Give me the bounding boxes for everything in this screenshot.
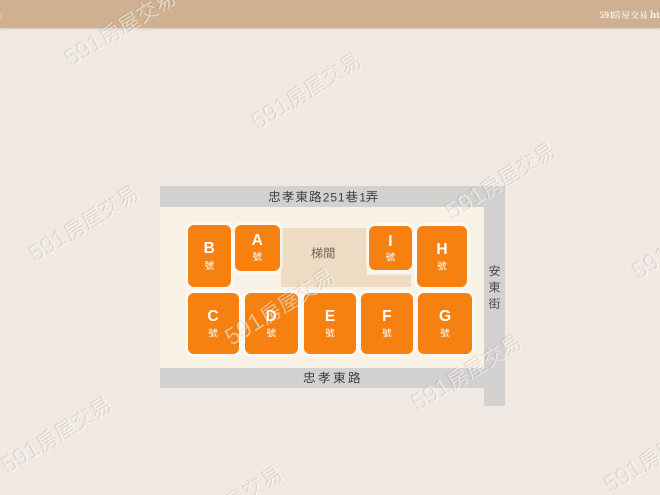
svg-text:1: 1 bbox=[359, 190, 366, 204]
svg-text:http: http bbox=[650, 9, 660, 21]
svg-text:251: 251 bbox=[323, 190, 346, 204]
svg-text:591: 591 bbox=[600, 11, 615, 21]
